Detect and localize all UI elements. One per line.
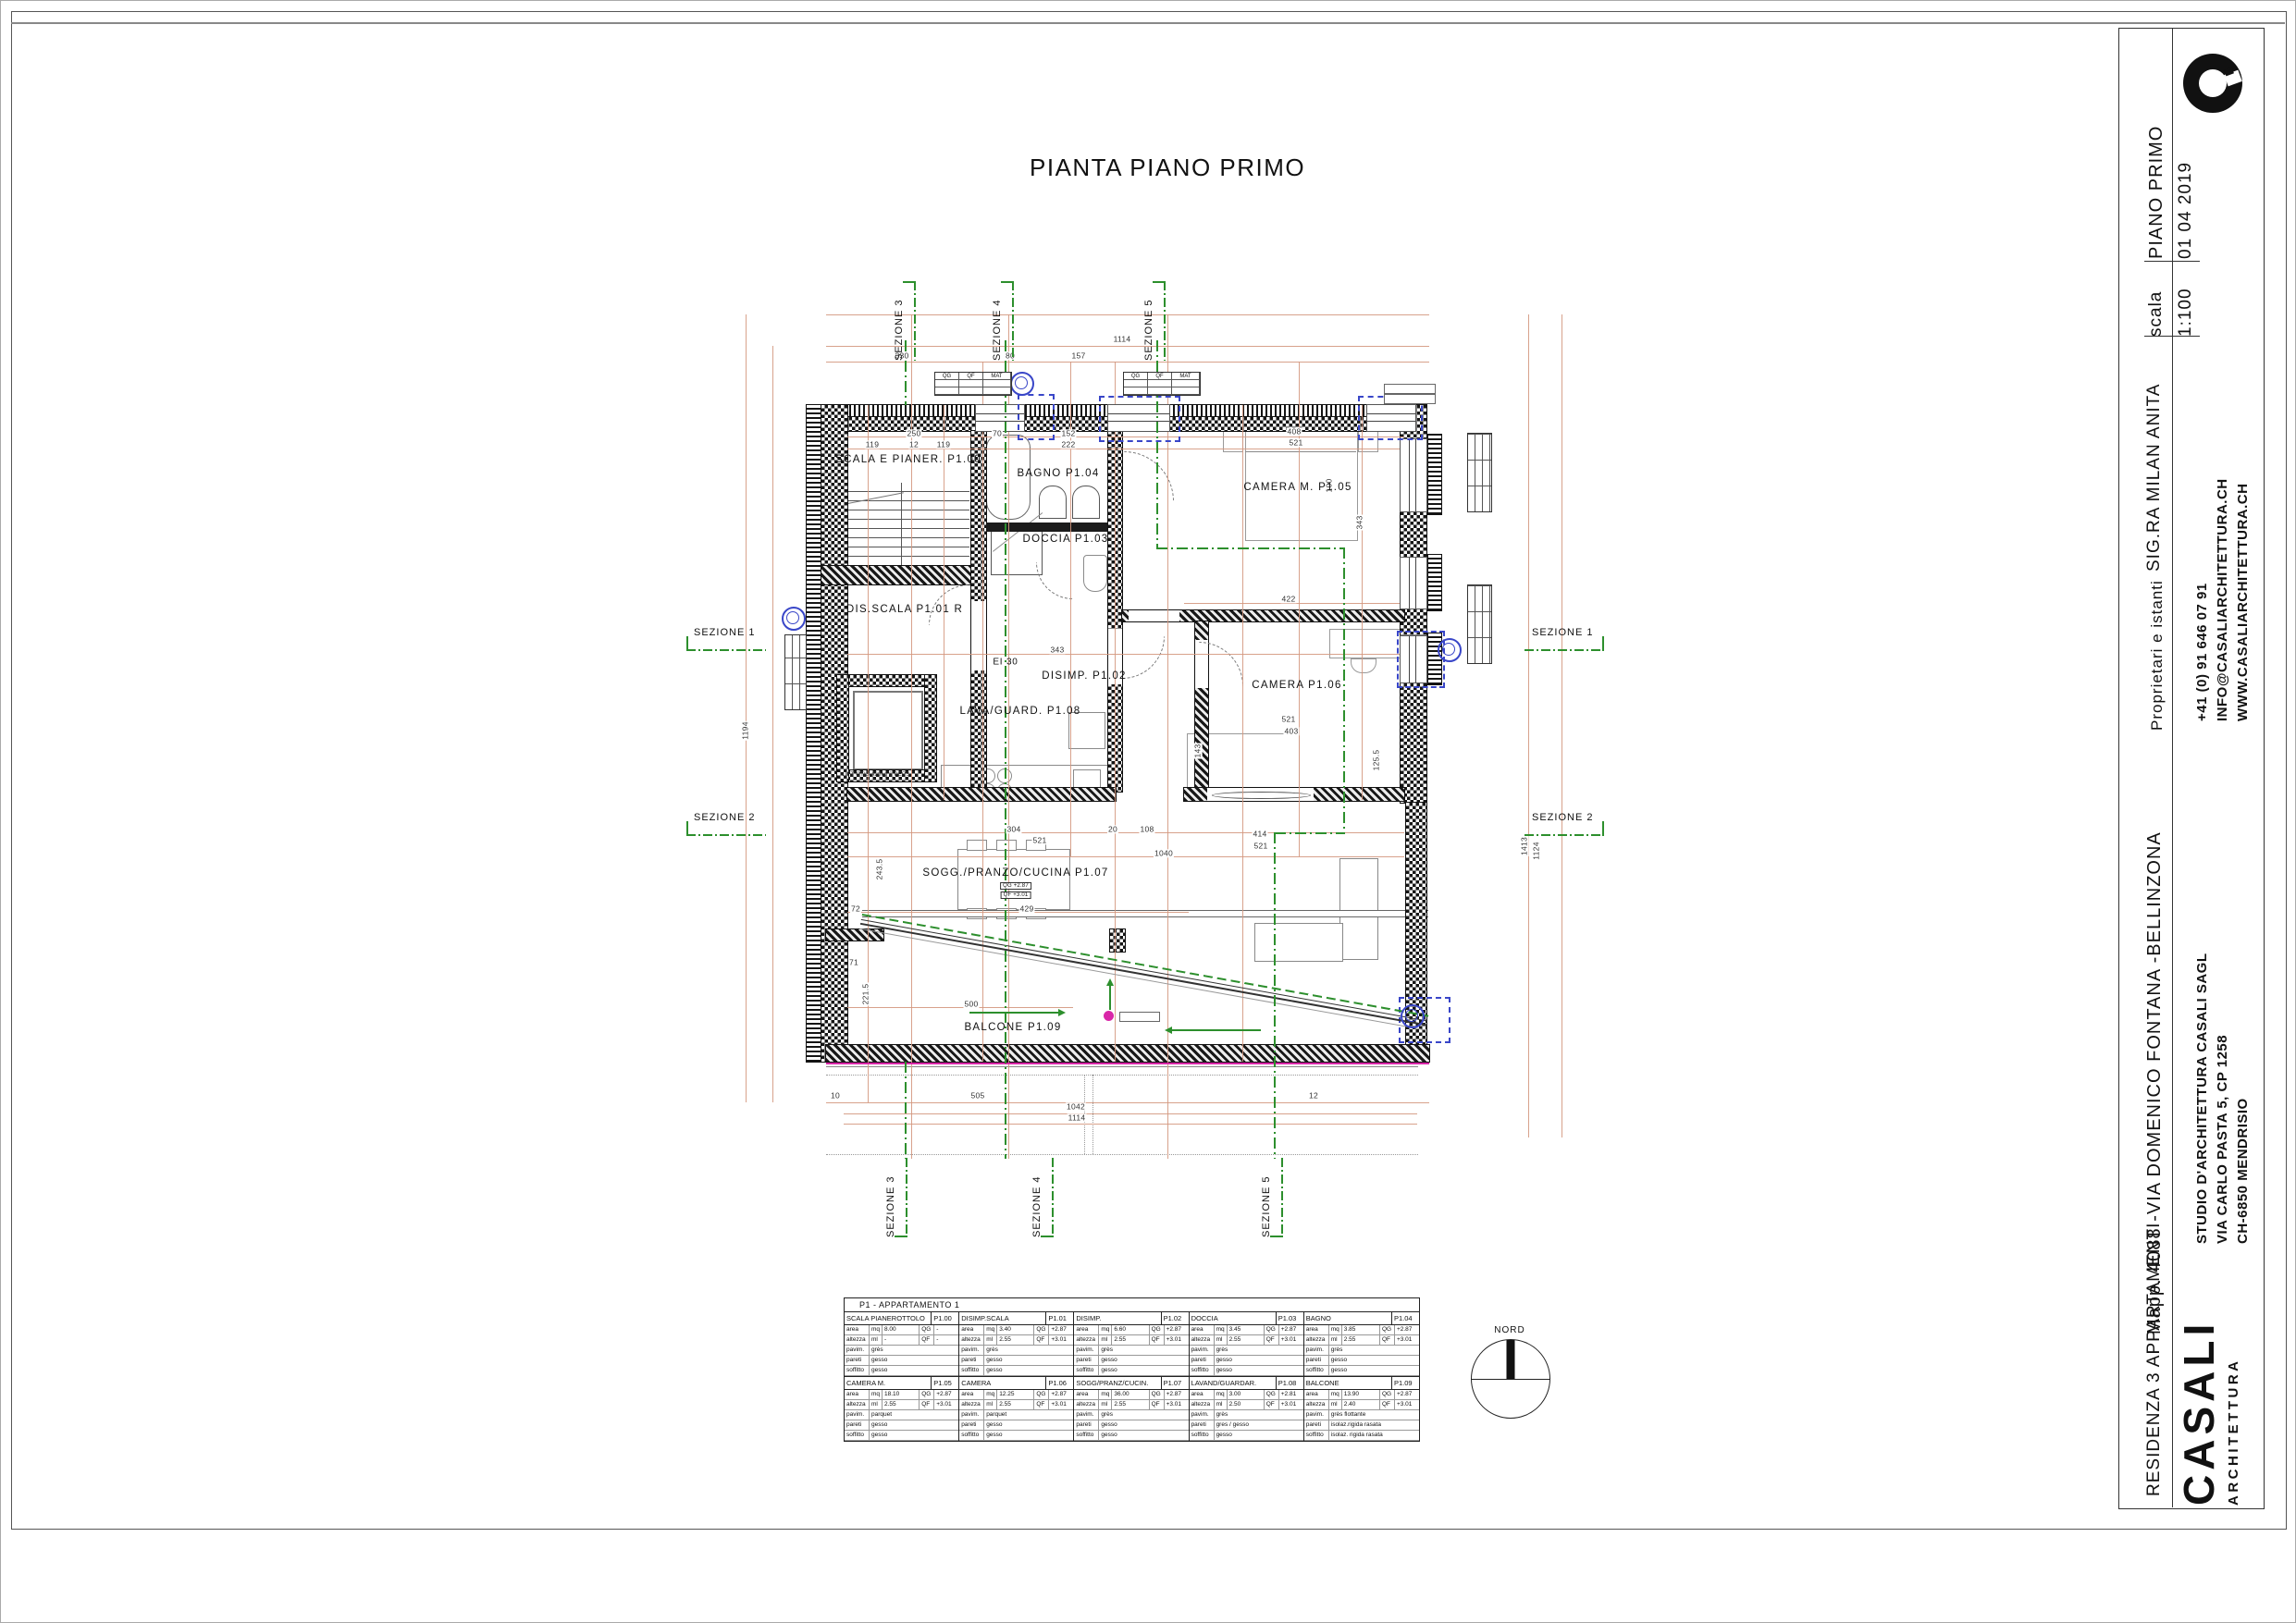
qg-value: +2.87 xyxy=(1164,1390,1189,1399)
pareti-value: gesso xyxy=(869,1420,958,1430)
room-floor-row: pavim. grès xyxy=(1190,1346,1303,1356)
room-area-row: area mq 12.25 QG +2.87 xyxy=(959,1390,1073,1400)
section-label: SEZIONE 2 xyxy=(1532,812,1593,823)
north-label: NORD xyxy=(1494,1325,1524,1335)
room-area-row: area mq 3.00 QG +2.81 xyxy=(1190,1390,1303,1400)
dimension-label: 500 xyxy=(963,1000,979,1008)
ml-label: ml xyxy=(869,1400,882,1409)
sheet-name: PIANO PRIMO xyxy=(2146,155,2172,259)
dim-line xyxy=(847,856,1404,857)
pareti-value: gesso xyxy=(983,1356,1073,1365)
dimension-label: 414 xyxy=(1252,830,1267,838)
chair xyxy=(967,840,987,851)
soffitto-value: gesso xyxy=(1098,1431,1188,1440)
room-walls-row: pareti gres / gesso xyxy=(1190,1420,1303,1431)
room-ceiling-row: soffitto gesso xyxy=(1074,1366,1188,1376)
altezza-label: altezza xyxy=(1304,1400,1328,1409)
mq-label: mq xyxy=(1214,1325,1227,1334)
altezza-value: 2.55 xyxy=(1111,1400,1148,1409)
dimension-label: 12 xyxy=(908,440,920,449)
qg-value: +2.87 xyxy=(933,1390,958,1399)
ml-label: ml xyxy=(1214,1335,1227,1345)
section-label: SEZIONE 3 xyxy=(885,1158,896,1237)
ml-label: ml xyxy=(869,1335,882,1345)
sink xyxy=(1072,486,1100,519)
north-circle xyxy=(1471,1339,1550,1419)
room-name: DISIMP.SCALA xyxy=(959,1312,1045,1324)
room-label: SOGG./PRANZO/CUCINA P1.07 xyxy=(922,867,1108,879)
area-value: 12.25 xyxy=(996,1390,1033,1399)
pavim-label: pavim. xyxy=(1190,1346,1214,1355)
altezza-value: 2.55 xyxy=(996,1335,1033,1345)
wall-soggiorno-top-left xyxy=(847,788,1116,801)
pareti-value: gesso xyxy=(983,1420,1073,1430)
room-spec-block: DOCCIA P1.03 area mq 3.45 QG +2.87 altez… xyxy=(1190,1312,1304,1376)
soffitto-value: gesso xyxy=(1214,1366,1303,1375)
section-line xyxy=(906,1158,907,1237)
pareti-value: gesso xyxy=(1328,1356,1419,1365)
dim-line xyxy=(844,1113,1417,1114)
scale-label: scala xyxy=(2146,270,2172,337)
firm-website: WWW.CASALIARCHITETTURA.CH xyxy=(2235,488,2255,721)
sofa xyxy=(1254,923,1343,962)
room-floor-row: pavim. grès xyxy=(1074,1410,1188,1420)
drain-point xyxy=(1104,1011,1114,1021)
pavim-value: grès xyxy=(1214,1346,1303,1355)
qg-label: QG xyxy=(1033,1325,1048,1334)
room-spec-block: CAMERA M. P1.05 area mq 18.10 QG +2.87 a… xyxy=(845,1377,959,1441)
room-area-row: area mq 3.85 QG +2.87 xyxy=(1304,1325,1419,1335)
dim-line xyxy=(847,1007,1073,1008)
window-table-header: MAT xyxy=(983,373,1011,380)
title-block-separator xyxy=(2144,261,2200,262)
section-line xyxy=(1281,1158,1283,1237)
room-code: P1.07 xyxy=(1161,1377,1189,1389)
door-opening xyxy=(971,601,986,670)
window xyxy=(1401,439,1426,511)
dining-table xyxy=(957,849,1070,910)
pareti-value: gres / gesso xyxy=(1214,1420,1303,1430)
under-balcony-outline xyxy=(826,1154,1418,1155)
door-arc xyxy=(1124,451,1174,501)
soffitto-value: gesso xyxy=(983,1431,1073,1440)
area-label: area xyxy=(1304,1325,1328,1334)
mq-label: mq xyxy=(1098,1325,1111,1334)
mq-label: mq xyxy=(1214,1390,1227,1399)
pavim-value: grès xyxy=(1214,1410,1303,1420)
room-code: P1.05 xyxy=(931,1377,958,1389)
project-name: RESIDENZA 3 APPARTAMENTI xyxy=(2144,1274,2172,1496)
dimension-label: 403 xyxy=(1283,727,1299,735)
room-height-row: altezza ml 2.55 QF +3.01 xyxy=(845,1400,958,1410)
qf-label: QF xyxy=(1149,1335,1164,1345)
pareti-label: pareti xyxy=(959,1356,983,1365)
section-cut-line xyxy=(905,1062,907,1159)
room-name: DISIMP. xyxy=(1074,1312,1160,1324)
soffitto-value: isolaz. rigida rasata xyxy=(1328,1431,1419,1440)
qg-label: QG xyxy=(1379,1390,1394,1399)
section-marker: SEZIONE 1 xyxy=(1524,627,1604,651)
qg-label: QG xyxy=(919,1325,933,1334)
section-line xyxy=(1012,281,1014,361)
qf-label: QF xyxy=(1264,1400,1278,1409)
dimension-label: 521 xyxy=(1288,438,1303,447)
door-arc xyxy=(1036,562,1073,599)
qf-value: +3.01 xyxy=(1164,1400,1189,1409)
window-table-header: MAT xyxy=(1172,373,1200,380)
room-area-row: area mq 6.60 QG +2.87 xyxy=(1074,1325,1188,1335)
section-line xyxy=(686,649,766,651)
room-floor-row: pavim. grès xyxy=(1190,1410,1303,1420)
under-balcony-outline xyxy=(1092,1075,1093,1154)
altezza-label: altezza xyxy=(1074,1400,1098,1409)
balcony-edge-line xyxy=(826,1063,1429,1064)
soffitto-label: soffitto xyxy=(845,1366,869,1375)
room-spec-header: BAGNO P1.04 xyxy=(1304,1312,1419,1325)
mq-label: mq xyxy=(869,1390,882,1399)
dimension-label: 70 xyxy=(992,429,1003,437)
room-height-row: altezza ml - QF - xyxy=(845,1335,958,1346)
altezza-label: altezza xyxy=(1190,1335,1214,1345)
area-label: area xyxy=(1304,1390,1328,1399)
slope-arrow xyxy=(1172,1029,1261,1031)
dimension-label: 221.5 xyxy=(861,983,870,1006)
room-spec-header: DISIMP.SCALA P1.01 xyxy=(959,1312,1073,1325)
room-ceiling-row: soffitto gesso xyxy=(1304,1366,1419,1376)
chair xyxy=(996,840,1017,851)
section-label: SEZIONE 4 xyxy=(992,281,1003,361)
soffitto-value: gesso xyxy=(1328,1366,1419,1375)
altezza-value: 2.55 xyxy=(996,1400,1033,1409)
pareti-value: gesso xyxy=(869,1356,958,1365)
area-value: 3.45 xyxy=(1227,1325,1264,1334)
area-value: 6.60 xyxy=(1111,1325,1148,1334)
spec-table-title: P1 - APPARTAMENTO 1 xyxy=(845,1298,1419,1312)
pavim-value: grès xyxy=(983,1346,1073,1355)
dimension-label: 108 xyxy=(1139,825,1154,833)
section-line xyxy=(1524,834,1604,836)
firm-logo-icon xyxy=(2183,54,2242,113)
room-label: QG +2.87 xyxy=(1000,882,1031,890)
studio-line1: STUDIO D'ARCHITETTURA CASALI SAGL xyxy=(2194,800,2215,1244)
wall-left-insulation xyxy=(807,405,821,1062)
room-area-row: area mq 8.00 QG - xyxy=(845,1325,958,1335)
pavim-label: pavim. xyxy=(1304,1346,1328,1355)
altezza-value: 2.50 xyxy=(1227,1400,1264,1409)
ml-label: ml xyxy=(1328,1400,1341,1409)
room-walls-row: pareti gesso xyxy=(1304,1356,1419,1366)
qf-label: QF xyxy=(1264,1335,1278,1345)
area-label: area xyxy=(1190,1325,1214,1334)
pareti-label: pareti xyxy=(1304,1420,1328,1430)
room-spec-header: SOGG/PRANZ/CUCIN. P1.07 xyxy=(1074,1377,1188,1390)
pareti-value: gesso xyxy=(1098,1420,1188,1430)
dimension-label: 20 xyxy=(1107,825,1118,833)
room-label: BAGNO P1.04 xyxy=(1017,468,1099,479)
pareti-label: pareti xyxy=(959,1420,983,1430)
dim-line xyxy=(1528,314,1529,1137)
area-value: 8.00 xyxy=(882,1325,919,1334)
pavim-value: parquet xyxy=(869,1410,958,1420)
pareti-value: gesso xyxy=(1214,1356,1303,1365)
room-height-row: altezza ml 2.40 QF +3.01 xyxy=(1304,1400,1419,1410)
room-walls-row: pareti gesso xyxy=(959,1356,1073,1366)
qf-value: +3.01 xyxy=(1164,1335,1189,1345)
pavim-value: grès xyxy=(1098,1410,1188,1420)
section-cut-line xyxy=(1343,547,1345,834)
section-label: SEZIONE 4 xyxy=(1031,1158,1043,1237)
door-arc xyxy=(1199,642,1243,686)
north-compass: NORD xyxy=(1471,1321,1549,1419)
mq-label: mq xyxy=(1098,1390,1111,1399)
room-spec-header: BALCONE P1.09 xyxy=(1304,1377,1419,1390)
room-name: BAGNO xyxy=(1304,1312,1391,1324)
soffitto-label: soffitto xyxy=(845,1431,869,1440)
dimension-label: 1413 xyxy=(1520,836,1528,856)
section-line xyxy=(686,834,766,836)
room-spec-header: DISIMP. P1.02 xyxy=(1074,1312,1188,1325)
room-spec-block: BALCONE P1.09 area mq 13.90 QG +2.87 alt… xyxy=(1304,1377,1419,1441)
pavim-label: pavim. xyxy=(959,1346,983,1355)
pareti-label: pareti xyxy=(845,1420,869,1430)
window-schedule-table: QGQFMAT xyxy=(1123,372,1201,396)
soffitto-label: soffitto xyxy=(959,1366,983,1375)
elevator-shaft-wall xyxy=(925,675,936,781)
altezza-value: 2.55 xyxy=(1227,1335,1264,1345)
room-ceiling-row: soffitto isolaz. rigida rasata xyxy=(1304,1431,1419,1441)
pavim-label: pavim. xyxy=(1304,1410,1328,1420)
room-spec-header: LAVAND/GUARDAR. P1.08 xyxy=(1190,1377,1303,1390)
room-floor-row: pavim. grès xyxy=(845,1346,958,1356)
qg-label: QG xyxy=(1264,1325,1278,1334)
room-name: BALCONE xyxy=(1304,1377,1391,1389)
pavim-label: pavim. xyxy=(1074,1346,1098,1355)
area-label: area xyxy=(845,1325,869,1334)
pavim-value: grès xyxy=(869,1346,958,1355)
qf-label: QF xyxy=(919,1400,933,1409)
area-value: 3.40 xyxy=(996,1325,1033,1334)
survey-stamp-icon xyxy=(1401,1004,1425,1028)
pavim-label: pavim. xyxy=(959,1410,983,1420)
altezza-value: 2.55 xyxy=(1111,1335,1148,1345)
dimension-label: 243.5 xyxy=(875,858,883,881)
mq-label: mq xyxy=(1328,1390,1341,1399)
dim-line xyxy=(1115,362,1116,1062)
qg-label: QG xyxy=(1033,1390,1048,1399)
room-height-row: altezza ml 2.55 QF +3.01 xyxy=(1304,1335,1419,1346)
pavim-label: pavim. xyxy=(845,1346,869,1355)
note-box xyxy=(1384,394,1436,404)
room-walls-row: pareti gesso xyxy=(1074,1420,1188,1431)
dimension-label: 343 xyxy=(1049,646,1065,654)
soffitto-value: gesso xyxy=(869,1431,958,1440)
section-marker: SEZIONE 3 xyxy=(894,281,921,361)
dimension-label: 250 xyxy=(906,429,921,437)
room-code: P1.09 xyxy=(1391,1377,1419,1389)
owners-label: Proprietari e istanti xyxy=(2148,592,2172,731)
room-name: SOGG/PRANZ/CUCIN. xyxy=(1074,1377,1160,1389)
section-marker: SEZIONE 1 xyxy=(686,627,766,651)
elevator-shaft-wall xyxy=(837,675,848,781)
dimension-label: 429 xyxy=(1018,904,1034,913)
room-spec-block: DISIMP. P1.02 area mq 6.60 QG +2.87 alte… xyxy=(1074,1312,1189,1376)
section-line xyxy=(914,281,916,361)
dimension-label: 125.5 xyxy=(1372,749,1380,772)
spec-table: P1 - APPARTAMENTO 1 SCALA PIANEROTTOLO P… xyxy=(844,1297,1420,1442)
mq-label: mq xyxy=(1328,1325,1341,1334)
balcony-lower-line xyxy=(826,1066,1418,1067)
soffitto-label: soffitto xyxy=(959,1431,983,1440)
dim-line xyxy=(844,1124,1417,1125)
soffitto-value: gesso xyxy=(983,1366,1073,1375)
area-value: 3.00 xyxy=(1227,1390,1264,1399)
qf-value: +3.01 xyxy=(1048,1335,1073,1345)
room-floor-row: pavim. grès xyxy=(1074,1346,1188,1356)
pareti-label: pareti xyxy=(1190,1356,1214,1365)
room-code: P1.08 xyxy=(1276,1377,1303,1389)
door-arc xyxy=(1122,636,1165,679)
altezza-label: altezza xyxy=(1190,1400,1214,1409)
dimension-label: 422 xyxy=(1280,595,1296,603)
dim-line xyxy=(847,654,1404,655)
balcony-slab-edge xyxy=(826,1045,1429,1062)
firm-phone: +41 (0) 91 646 07 91 xyxy=(2194,507,2215,721)
under-balcony-outline xyxy=(826,1075,1418,1076)
qf-value: +3.01 xyxy=(1278,1335,1303,1345)
qf-value: +3.01 xyxy=(1048,1400,1073,1409)
room-walls-row: pareti gesso xyxy=(1074,1356,1188,1366)
window-table-header: QG xyxy=(1124,373,1148,380)
area-value: 18.10 xyxy=(882,1390,919,1399)
dimension-label: 1194 xyxy=(741,720,749,740)
room-walls-row: pareti gesso xyxy=(959,1420,1073,1431)
room-code: P1.04 xyxy=(1391,1312,1419,1324)
section-marker: SEZIONE 5 xyxy=(1261,1158,1289,1237)
section-label: SEZIONE 3 xyxy=(894,281,905,361)
room-ceiling-row: soffitto gesso xyxy=(1074,1431,1188,1441)
area-value: 3.85 xyxy=(1341,1325,1379,1334)
qg-value: +2.81 xyxy=(1278,1390,1303,1399)
qf-label: QF xyxy=(1149,1400,1164,1409)
dim-line xyxy=(1562,314,1562,1137)
qf-label: QF xyxy=(1033,1400,1048,1409)
room-area-row: area mq 18.10 QG +2.87 xyxy=(845,1390,958,1400)
firm-subtitle: ARCHITETTURA xyxy=(2226,1233,2244,1506)
dim-line xyxy=(826,362,1429,363)
sink xyxy=(1039,486,1067,519)
area-value: 36.00 xyxy=(1111,1390,1148,1399)
sheet-date: 01 04 2019 xyxy=(2176,155,2198,259)
dimension-label: 10 xyxy=(830,1091,841,1100)
room-label: DOCCIA P1.03 xyxy=(1023,534,1109,545)
qg-value: +2.87 xyxy=(1394,1390,1419,1399)
room-walls-row: pareti isolaz.rigida rasata xyxy=(1304,1420,1419,1431)
qf-label: QF xyxy=(1379,1400,1394,1409)
room-code: P1.03 xyxy=(1276,1312,1303,1324)
ml-label: ml xyxy=(983,1335,996,1345)
chair xyxy=(1351,658,1376,673)
window-table-header: QF xyxy=(959,373,983,380)
compass-horizon-line xyxy=(1471,1379,1550,1380)
window-schedule-table xyxy=(784,634,807,710)
washing-machine xyxy=(1068,712,1105,749)
dimension-label: 12 xyxy=(1308,1091,1319,1100)
pavim-label: pavim. xyxy=(845,1410,869,1420)
mq-label: mq xyxy=(869,1325,882,1334)
room-label: CAMERA P1.06 xyxy=(1252,680,1341,691)
wall-stair-bottom xyxy=(821,566,971,584)
room-name: CAMERA xyxy=(959,1377,1045,1389)
window-table-header: QG xyxy=(935,373,959,380)
room-ceiling-row: soffitto gesso xyxy=(1190,1431,1303,1441)
altezza-value: 2.55 xyxy=(882,1400,919,1409)
shutter-box xyxy=(1428,435,1441,514)
room-spec-block: LAVAND/GUARDAR. P1.08 area mq 3.00 QG +2… xyxy=(1190,1377,1304,1441)
pavim-value: grès xyxy=(1328,1346,1419,1355)
qg-value: +2.87 xyxy=(1048,1390,1073,1399)
dimension-label: 521 xyxy=(1280,715,1296,723)
firm-email: INFO@CASALIARCHITETTURA.CH xyxy=(2215,488,2235,721)
soffitto-label: soffitto xyxy=(1190,1431,1214,1440)
slope-arrow xyxy=(1109,986,1111,1010)
qf-label: QF xyxy=(919,1335,933,1345)
dimension-label: 72 xyxy=(850,904,861,913)
qg-value: +2.87 xyxy=(1048,1325,1073,1334)
sliding-door xyxy=(1212,792,1311,799)
area-label: area xyxy=(845,1390,869,1399)
area-label: area xyxy=(1190,1390,1214,1399)
scale-value: 1:100 xyxy=(2176,270,2198,337)
dimension-label: 521 xyxy=(1031,836,1047,844)
dimension-label: 1114 xyxy=(1068,1113,1087,1122)
room-spec-header: CAMERA P1.06 xyxy=(959,1377,1073,1390)
window-marker xyxy=(1018,394,1055,440)
room-name: CAMERA M. xyxy=(845,1377,931,1389)
note-box xyxy=(1119,1012,1160,1022)
soffitto-label: soffitto xyxy=(1074,1366,1098,1375)
qf-value: +3.01 xyxy=(933,1400,958,1409)
room-code: P1.06 xyxy=(1045,1377,1073,1389)
section-label: SEZIONE 2 xyxy=(694,812,755,823)
dimension-label: 157 xyxy=(1070,351,1086,360)
area-label: area xyxy=(1074,1325,1098,1334)
dimension-label: 119 xyxy=(865,440,880,449)
section-cut-line xyxy=(1156,547,1345,549)
room-floor-row: pavim. grès xyxy=(959,1346,1073,1356)
slope-arrow xyxy=(969,1012,1058,1014)
room-ceiling-row: soffitto gesso xyxy=(959,1431,1073,1441)
spec-table-row: CAMERA M. P1.05 area mq 18.10 QG +2.87 a… xyxy=(845,1377,1419,1441)
section-label: SEZIONE 5 xyxy=(1261,1158,1272,1237)
dimension-label: 304 xyxy=(1006,825,1021,833)
dimension-label: 1040 xyxy=(1154,849,1174,857)
dim-line xyxy=(772,346,773,1102)
sofa xyxy=(1339,858,1378,960)
soffitto-label: soffitto xyxy=(1190,1366,1214,1375)
pareti-value: isolaz.rigida rasata xyxy=(1328,1420,1419,1430)
dimension-label: 343 xyxy=(1355,514,1364,530)
room-spec-block: SOGG/PRANZ/CUCIN. P1.07 area mq 36.00 QG… xyxy=(1074,1377,1189,1441)
room-label: LAVA/GUARD. P1.08 xyxy=(960,706,1081,717)
room-spec-header: SCALA PIANEROTTOLO P1.00 xyxy=(845,1312,958,1325)
room-area-row: area mq 3.45 QG +2.87 xyxy=(1190,1325,1303,1335)
dimension-label: 408 xyxy=(1286,427,1302,436)
altezza-label: altezza xyxy=(845,1335,869,1345)
studio-line3: CH-6850 MENDRISIO xyxy=(2235,931,2255,1244)
room-height-row: altezza ml 2.55 QF +3.01 xyxy=(1074,1400,1188,1410)
room-walls-row: pareti gesso xyxy=(845,1356,958,1366)
room-name: SCALA PIANEROTTOLO xyxy=(845,1312,931,1324)
